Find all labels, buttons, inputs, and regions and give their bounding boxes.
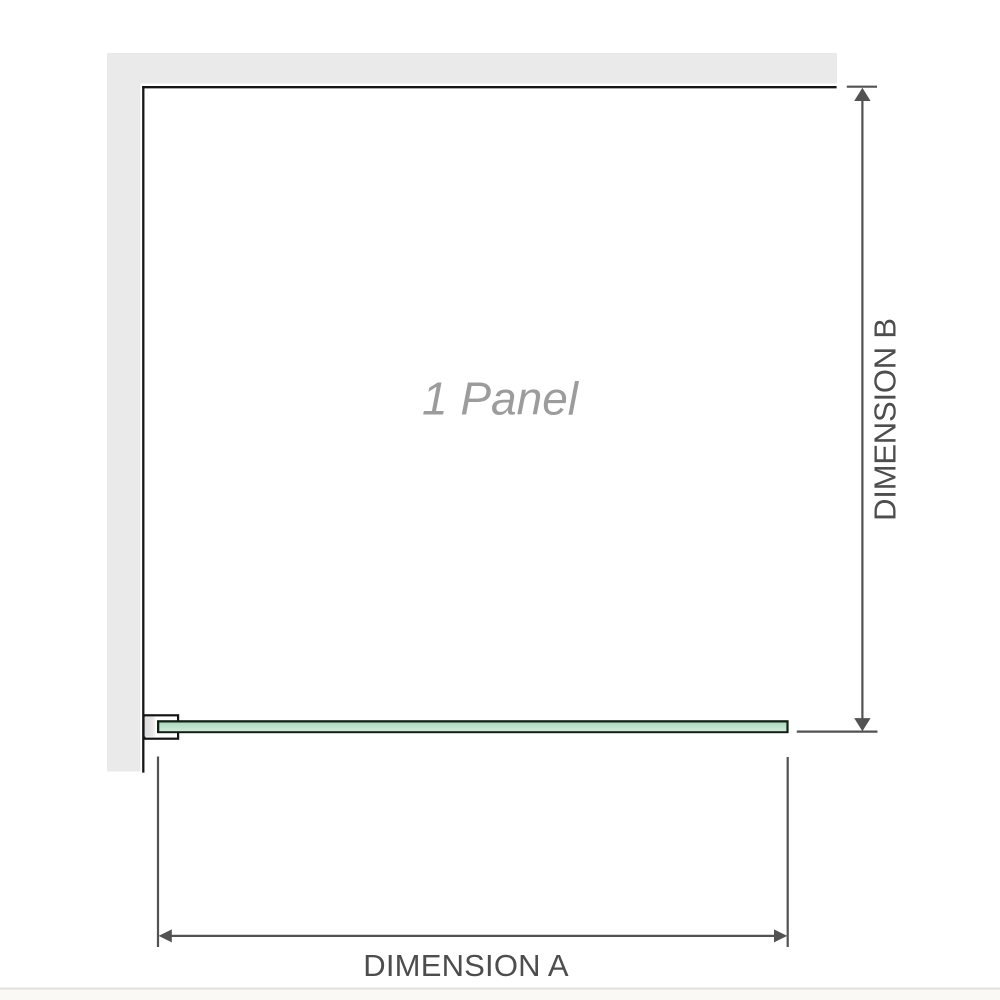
svg-text:1 Panel: 1 Panel [422, 373, 580, 425]
svg-text:DIMENSION B: DIMENSION B [868, 318, 903, 521]
svg-text:DIMENSION A: DIMENSION A [363, 948, 569, 983]
